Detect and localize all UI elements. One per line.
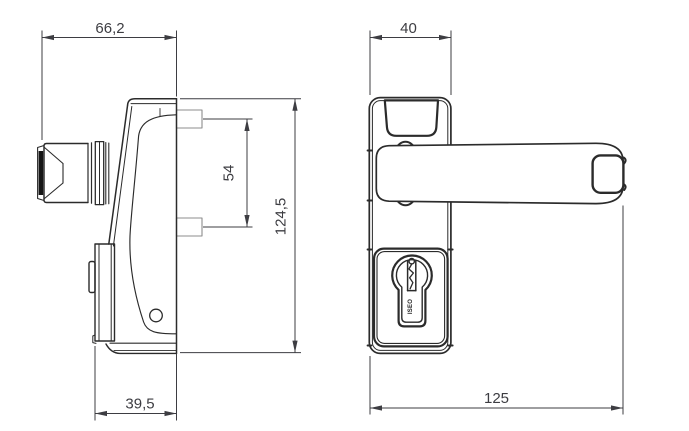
dim-plate-height-label: 124,5 bbox=[273, 198, 290, 236]
bolt-upper bbox=[177, 110, 203, 128]
arrowhead-left bbox=[370, 405, 382, 410]
side-view bbox=[38, 99, 202, 354]
bolt-lower bbox=[177, 218, 203, 236]
top-recess bbox=[385, 100, 438, 135]
arrowhead-down bbox=[244, 215, 249, 227]
dim-overall-depth-label: 66,2 bbox=[95, 20, 124, 37]
arrowhead-left bbox=[95, 411, 107, 416]
arrowhead-down bbox=[292, 341, 297, 353]
arrowhead-left bbox=[370, 35, 382, 40]
lever-boss-contour bbox=[130, 115, 176, 334]
body-front-inner bbox=[113, 107, 131, 247]
dim-fixing-centres: 54 bbox=[203, 119, 253, 227]
cylinder-end-cap bbox=[89, 262, 95, 293]
side-body bbox=[106, 99, 177, 354]
handle-technical-drawing: ISEO 66,2 54 124,5 bbox=[0, 0, 689, 431]
lever-handle bbox=[376, 142, 625, 206]
technical-drawing-page: ISEO 66,2 54 124,5 bbox=[0, 0, 689, 431]
screw-hole bbox=[150, 309, 163, 322]
arrowhead-right bbox=[165, 411, 177, 416]
fixing-bolts bbox=[177, 110, 203, 236]
grip-chamfer-bottom bbox=[45, 183, 64, 199]
body-front-face bbox=[109, 105, 128, 244]
handle-bar bbox=[376, 143, 623, 203]
dim-fixing-centres-label: 54 bbox=[221, 165, 238, 182]
dim-body-depth-label: 39,5 bbox=[125, 396, 154, 413]
arrowhead-right bbox=[165, 35, 177, 40]
cylinder-brand-mark: ISEO bbox=[408, 299, 414, 314]
dim-body-depth: 39,5 bbox=[95, 346, 177, 421]
grip-chamfer-top bbox=[45, 148, 64, 164]
arrowhead-up bbox=[292, 99, 297, 111]
dim-overall-depth: 66,2 bbox=[42, 20, 177, 140]
handle-end-cap bbox=[593, 155, 624, 192]
arrowhead-up bbox=[244, 119, 249, 131]
dimensions: 66,2 54 124,5 39,5 bbox=[42, 20, 623, 421]
front-view: ISEO bbox=[368, 98, 626, 354]
dim-plate-width: 40 bbox=[370, 20, 451, 95]
arrowhead-left bbox=[42, 35, 54, 40]
dim-plate-height: 124,5 bbox=[180, 99, 301, 353]
cylinder-escutcheon bbox=[89, 244, 115, 343]
arrowhead-right bbox=[611, 405, 623, 410]
dim-plate-width-label: 40 bbox=[400, 20, 417, 37]
dim-overall-length-label: 125 bbox=[484, 390, 509, 407]
lock-cylinder-section: ISEO bbox=[374, 249, 448, 347]
handle-grip-side bbox=[38, 142, 109, 205]
arrowhead-right bbox=[439, 35, 451, 40]
body-bottom-edge bbox=[106, 344, 177, 353]
grip-end-dark-band bbox=[39, 151, 44, 195]
